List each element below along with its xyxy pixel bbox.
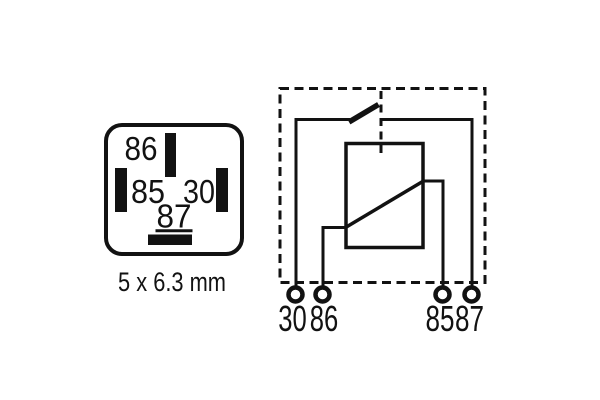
pin-30-blade-icon xyxy=(216,168,228,212)
terminal-85-label: 85 xyxy=(426,298,455,339)
terminal-87-label: 87 xyxy=(455,298,484,339)
terminal-86-label: 86 xyxy=(310,298,339,339)
relay-wiring-diagram: 86 85 30 87 5 x 6.3 mm 30 86 85 xyxy=(0,0,600,400)
terminal-30-label: 30 xyxy=(278,298,307,339)
pin-size-caption: 5 x 6.3 mm xyxy=(118,267,226,297)
pin-86-blade-icon xyxy=(165,133,176,177)
switch-blade-icon xyxy=(349,105,379,123)
schematic-view: 30 86 85 87 xyxy=(278,89,485,340)
pin-87-blade-icon xyxy=(148,235,192,246)
socket-view: 86 85 30 87 5 x 6.3 mm xyxy=(106,125,242,297)
relay-coil-box xyxy=(346,144,423,248)
wire-terminal-85 xyxy=(424,181,444,287)
relay-diagram-page: 86 85 30 87 5 x 6.3 mm 30 86 85 xyxy=(0,0,600,400)
pin-86-label: 86 xyxy=(125,130,158,167)
pin-85-blade-icon xyxy=(115,168,127,212)
wire-terminal-86 xyxy=(323,228,346,288)
pin-87-label: 87 xyxy=(157,198,192,235)
